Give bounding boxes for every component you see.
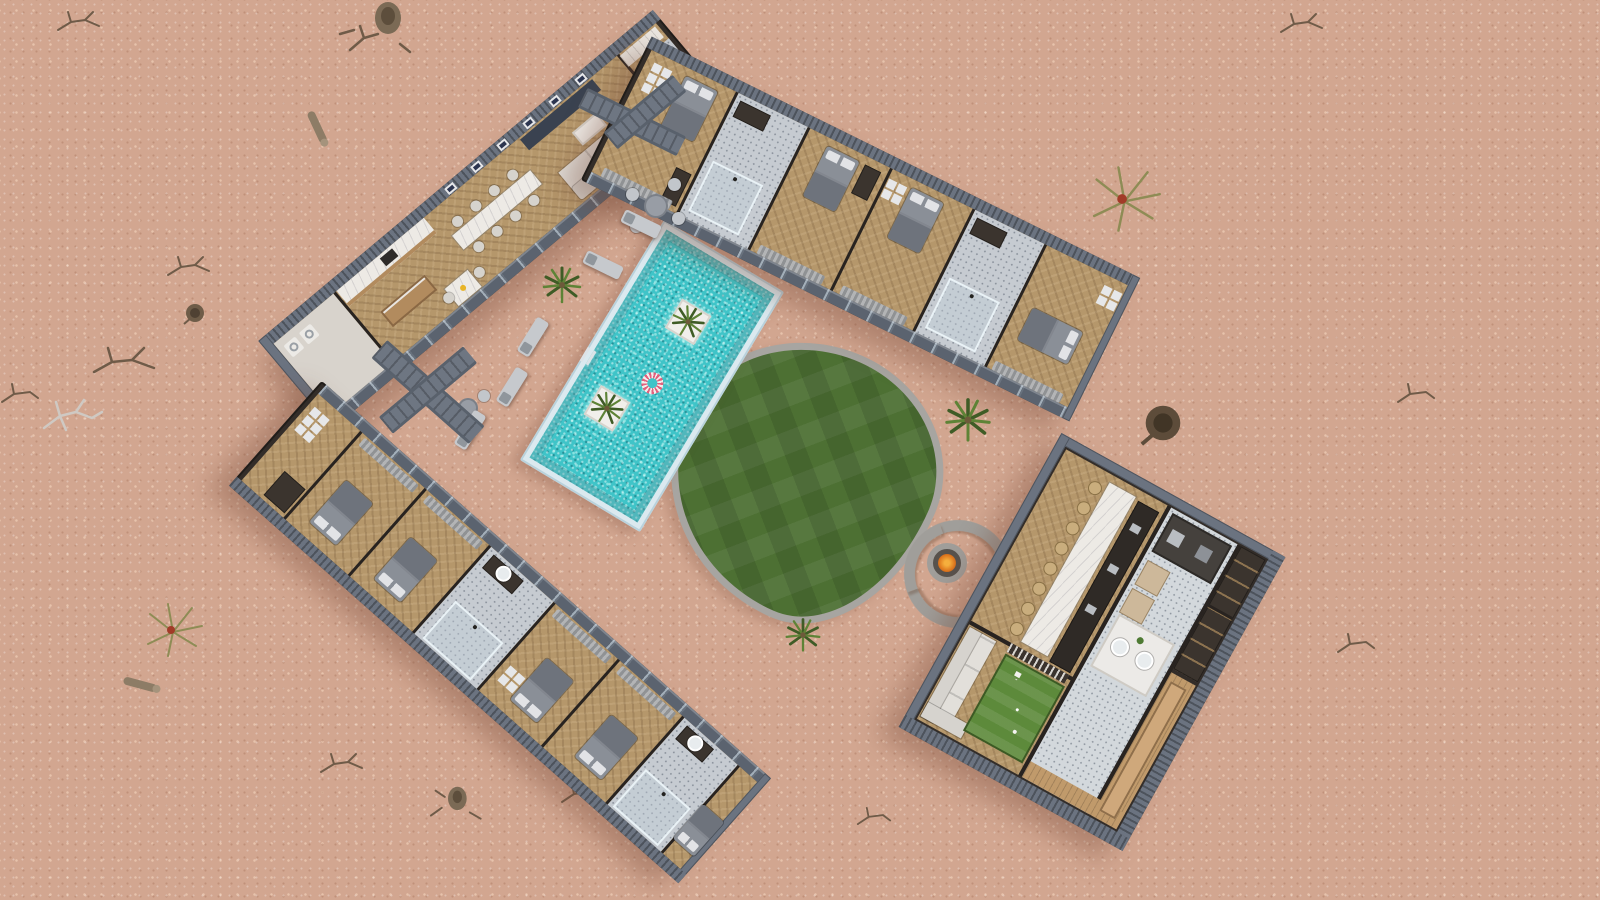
dead-branch	[318, 742, 368, 778]
dead-branch	[1336, 628, 1376, 658]
dead-branch	[1396, 378, 1436, 408]
sun-lounger	[582, 250, 624, 280]
tree-stump-with-branches	[330, 0, 420, 60]
courtyard-palm-bush	[942, 394, 994, 446]
golf-hole	[1012, 729, 1017, 734]
flower-vase	[459, 284, 467, 292]
dead-branch	[55, 0, 105, 36]
dry-shrub	[138, 598, 208, 662]
dead-branch	[0, 378, 40, 408]
stove	[1166, 529, 1185, 548]
cafe-chair	[626, 188, 639, 201]
desert-resort-scene	[0, 0, 1600, 900]
courtyard-palm-bush	[540, 263, 584, 307]
golf-ball	[1015, 708, 1019, 712]
fallen-log	[303, 108, 333, 150]
courtyard-palm-bush	[783, 615, 823, 655]
cafe-chair	[672, 212, 685, 225]
dead-branch	[1278, 2, 1328, 38]
dry-shrub	[1082, 160, 1167, 238]
tree-stump	[1138, 398, 1188, 448]
sun-lounger	[495, 366, 528, 407]
cafe-table	[646, 196, 666, 216]
oven	[1194, 545, 1213, 564]
herb-plant	[1135, 636, 1145, 646]
island-sink	[1110, 638, 1129, 657]
bare-white-tree	[36, 382, 106, 438]
cafe-chair	[668, 178, 681, 191]
cafe-chair	[478, 390, 490, 402]
fire	[938, 554, 956, 572]
fallen-log	[121, 673, 163, 697]
tree-stump	[182, 300, 208, 326]
sun-lounger	[516, 316, 549, 357]
dead-branch	[856, 802, 892, 830]
dead-branch	[165, 245, 215, 281]
tree-stump-with-branches	[420, 772, 490, 828]
golf-flag	[1014, 671, 1022, 678]
dead-branch	[90, 338, 160, 378]
island-sink	[1135, 651, 1154, 670]
